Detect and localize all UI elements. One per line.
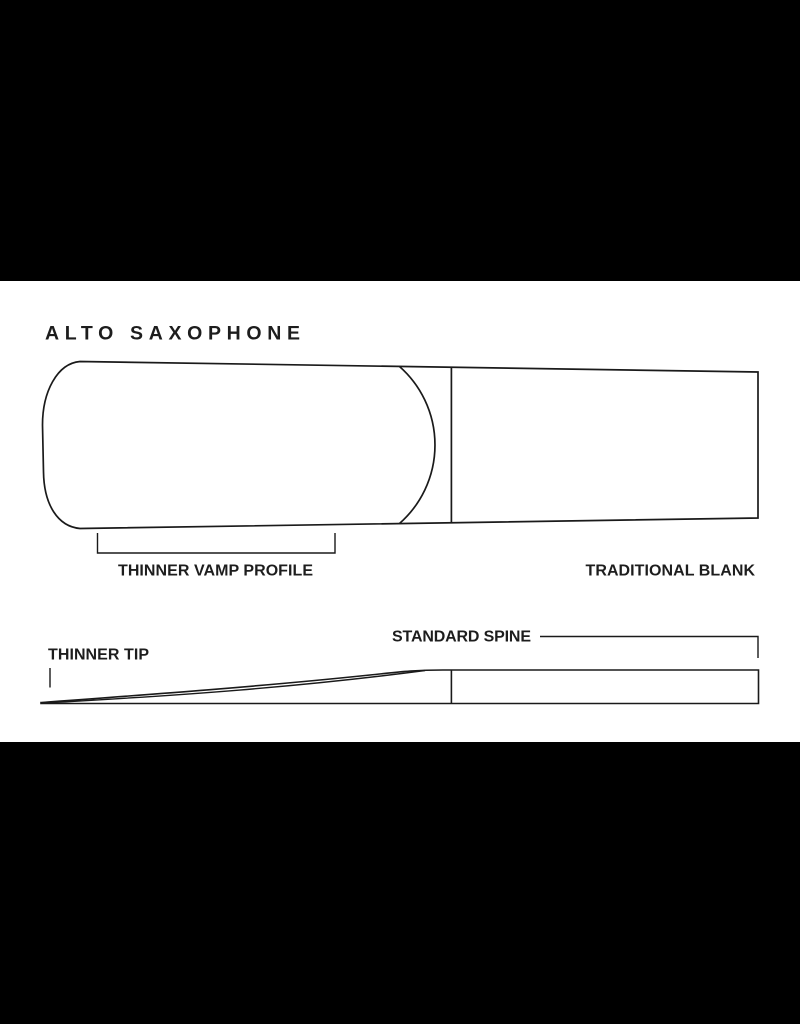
svg-text:TRADITIONAL BLANK: TRADITIONAL BLANK: [586, 563, 756, 580]
svg-text:THINNER TIP: THINNER TIP: [48, 647, 149, 664]
svg-text:STANDARD SPINE: STANDARD SPINE: [392, 629, 531, 646]
svg-text:THINNER VAMP PROFILE: THINNER VAMP PROFILE: [118, 563, 313, 580]
